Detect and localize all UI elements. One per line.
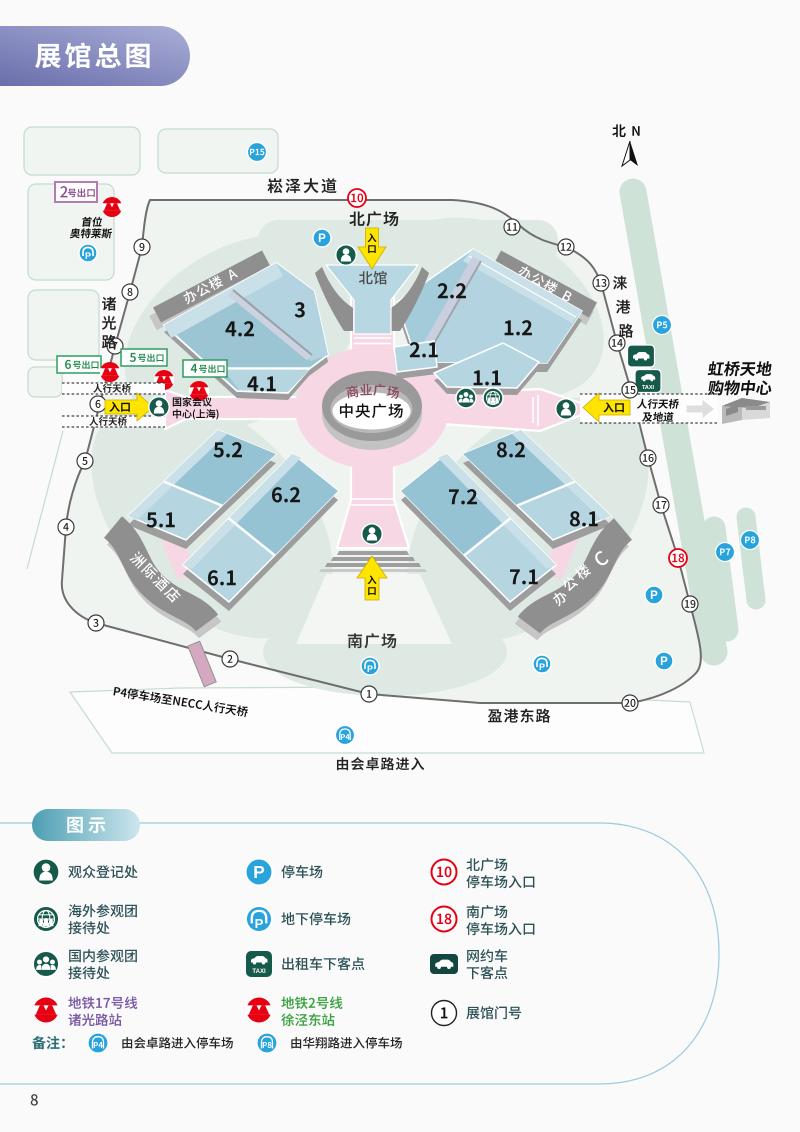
svg-text:TAXI: TAXI <box>642 385 655 391</box>
svg-text:TAXI: TAXI <box>252 969 266 975</box>
